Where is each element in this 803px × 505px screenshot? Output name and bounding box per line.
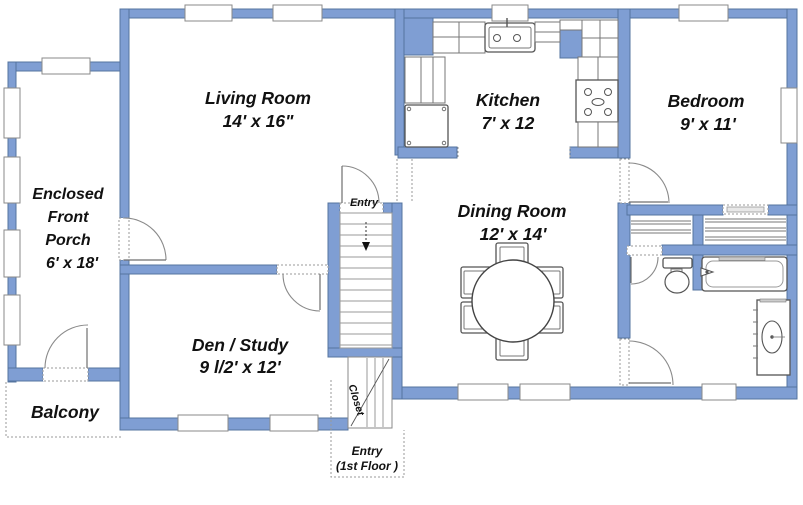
bedroom-label: Bedroom (668, 91, 745, 111)
doorway-bedroom (620, 159, 629, 203)
cabinet-left (405, 57, 445, 103)
wall-entry-cap (383, 203, 392, 213)
porch-label-line3: Porch (45, 232, 91, 249)
door-arc-bedroom (629, 163, 669, 203)
kitchen-dims: 7' x 12 (482, 113, 535, 133)
window-living-2 (273, 5, 322, 21)
window-kitchen (492, 5, 528, 21)
wall-dining-bath (618, 203, 630, 338)
stairs-symbol (340, 213, 392, 348)
wall-bedroom-closet-right (768, 205, 797, 215)
porch-dims: 6' x 18' (46, 255, 99, 272)
window-porch-1 (4, 88, 20, 138)
refrigerator-symbol (405, 105, 448, 147)
door-arc-den (283, 274, 320, 311)
closet-rod-right (705, 219, 786, 240)
window-porch-top (42, 58, 90, 74)
wall-kitchen-bar-right (570, 147, 618, 158)
wall-living-left (120, 9, 129, 218)
wall-kitchen-block-left (404, 18, 433, 55)
dining-table-symbol (472, 260, 554, 342)
wall-closet-bath (662, 245, 797, 255)
wall-kitchen-block-right (560, 30, 582, 58)
wall-stair-left (328, 203, 340, 357)
entry-lower-floor: (1st Floor ) (336, 459, 398, 473)
closet-slider-panel (727, 207, 764, 212)
kitchen-label: Kitchen (476, 90, 540, 110)
bathtub-symbol (701, 257, 787, 291)
window-bedroom-top (679, 5, 728, 21)
toilet-symbol (663, 258, 692, 293)
doorway-den (277, 265, 328, 274)
wall-kitchen-bar-left (398, 147, 457, 158)
kitchen-sink-symbol (485, 18, 535, 52)
balcony-label: Balcony (31, 402, 100, 422)
wall-bedroom-closet-left (627, 205, 723, 215)
window-den-2 (270, 415, 318, 431)
door-arc-porch-living (124, 218, 166, 260)
wall-porch-bottom-left (8, 368, 43, 381)
bathroom-fixtures (663, 257, 790, 375)
den-dims: 9 l/2' x 12' (199, 357, 281, 377)
den-label: Den / Study (192, 335, 290, 355)
doorway-bathroom (620, 339, 629, 385)
counter-strip (560, 20, 582, 30)
window-porch-4 (4, 295, 20, 345)
wall-kitchen-right (618, 9, 630, 158)
living-room-dims: 14' x 16" (223, 111, 295, 131)
window-bath (702, 384, 736, 400)
floor-plan-canvas: Living Room 14' x 16" Kitchen 7' x 12 Be… (0, 0, 803, 505)
window-porch-3 (4, 230, 20, 277)
closet-rod-left (631, 221, 691, 233)
wall-den-top (120, 265, 277, 274)
bedroom-dims: 9' x 11' (680, 114, 737, 134)
porch-label-line1: Enclosed (32, 186, 104, 203)
stairs-group (340, 213, 392, 428)
porch-label-line2: Front (48, 209, 90, 226)
closet-fixtures (631, 219, 786, 240)
entry-lower-label: Entry (352, 444, 384, 458)
dining-room-label: Dining Room (458, 201, 567, 221)
door-arc-balcony (45, 325, 88, 368)
window-den-1 (178, 415, 228, 431)
dining-furniture (461, 243, 563, 360)
window-living-1 (185, 5, 232, 21)
stove-symbol (576, 80, 618, 122)
living-room-label: Living Room (205, 88, 311, 108)
wall-bottom-right (397, 387, 797, 399)
wall-stair-right (392, 203, 402, 399)
floor-plan-page: Living Room 14' x 16" Kitchen 7' x 12 Be… (0, 0, 803, 505)
wall-den-left (120, 260, 129, 430)
window-dining-2 (520, 384, 570, 400)
window-dining-1 (458, 384, 508, 400)
wall-kitchen-left (395, 9, 404, 155)
entry-upper-label: Entry (350, 197, 379, 209)
doorway-bath-inner (627, 246, 662, 255)
wall-stair-bar (328, 348, 402, 357)
window-porch-2 (4, 157, 20, 203)
vanity-sink-symbol (753, 299, 790, 375)
door-arc-bath-inner (631, 257, 658, 284)
door-arc-bathroom (629, 341, 673, 385)
dining-room-dims: 12' x 14' (480, 224, 548, 244)
doorway-balcony (43, 368, 88, 381)
doorway-porch-living (119, 218, 129, 260)
window-bedroom-right (781, 88, 797, 143)
